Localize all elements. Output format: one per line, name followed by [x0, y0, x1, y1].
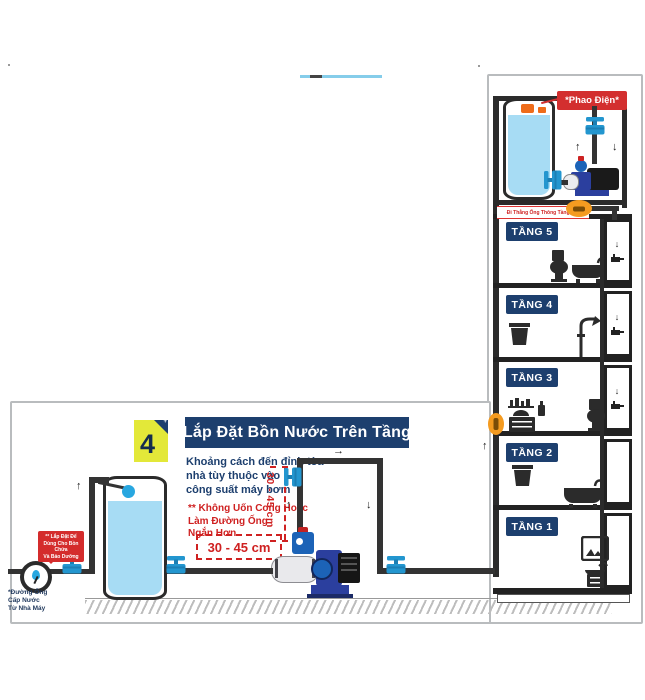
arrow-up-icon: ↑: [482, 441, 488, 452]
roof-suction-valve-icon: [544, 170, 562, 190]
shaft-valve-icon: ↓: [609, 313, 625, 340]
pump-motor: [338, 553, 360, 583]
pump-foot: [307, 594, 353, 598]
bathtub-icon: [563, 478, 603, 508]
arrow-up-icon: ↑: [286, 500, 292, 511]
tank-outlet-valve-icon: [166, 556, 186, 574]
supply-label-line: *Đường Ống: [8, 589, 47, 597]
vanity-shelf-icon: [506, 396, 540, 434]
loop-valve-icon: [284, 467, 302, 487]
arrow-down-icon: ↓: [609, 387, 625, 396]
step-badge: + 4: [134, 420, 168, 462]
pressure-controller: [292, 532, 314, 554]
shaft-valve-icon: ↓: [609, 240, 625, 267]
outlet-valve-icon: [386, 556, 406, 574]
roof-pump: [563, 160, 623, 200]
bubble-line: Dùng Cho Bồn Chứa: [38, 541, 84, 554]
floor-5-label: TẦNG 5: [506, 222, 558, 241]
floor-4-label: TẦNG 4: [506, 295, 558, 314]
laundry-basket-icon: [509, 320, 530, 346]
roof-outlet-pipe: [592, 106, 597, 164]
supply-label-line: Từ Nhà Máy: [8, 605, 47, 613]
floor-2-label: TẦNG 2: [506, 443, 558, 462]
shaft-floor2: [604, 439, 632, 505]
ground-tank-water: [108, 501, 162, 595]
float-switch-icon: [521, 104, 534, 113]
floor-1-label: TẦNG 1: [506, 517, 558, 536]
slab-4-3: [493, 357, 632, 362]
arrow-down-icon: ↓: [612, 142, 618, 153]
fill-pipe: [89, 477, 95, 574]
floor-3-label: TẦNG 3: [506, 368, 558, 387]
supply-label-line: Cấp Nước: [8, 597, 47, 605]
foundation: [497, 594, 630, 603]
pump-base: [575, 190, 609, 196]
pump-head: [311, 558, 333, 580]
step-number: 4: [140, 429, 155, 460]
arrow-right-icon: →: [333, 446, 344, 457]
pump-cap: [578, 156, 584, 161]
booster-pump: [271, 527, 361, 600]
faucet-valve-icon: [611, 326, 624, 335]
faucet-valve-icon: [611, 400, 624, 409]
artifact-blue-line: [300, 75, 382, 78]
speck-dot: [478, 65, 480, 67]
loop-top-pipe: [297, 458, 383, 464]
toilet-icon: [546, 250, 572, 283]
toilet-icon: [583, 399, 609, 432]
shaft-valve-icon: ↓: [609, 387, 625, 414]
bubble-line: Và Bảo Dưỡng: [38, 554, 84, 561]
arrow-up-icon: ↑: [76, 481, 82, 492]
sink-vanity-icon: [581, 560, 609, 588]
arrow-down-icon: ↓: [609, 313, 625, 322]
float-ball-icon: [122, 485, 135, 498]
mirror-icon: [581, 536, 609, 561]
plumbing-diagram: ↓ ↓ ↓ *Phao Điện* ↑ ↓ Đi Thẳng Ống Thông…: [0, 0, 645, 700]
sparkle-icon: +: [163, 419, 167, 425]
laundry-basket-icon: [512, 463, 533, 487]
roof-wall-bottom: [493, 200, 627, 205]
ground-tank: [103, 476, 167, 600]
shower-icon: [577, 314, 602, 358]
arrow-down-icon: ↓: [609, 240, 625, 249]
slab-5-4: [493, 283, 632, 288]
bathtub-icon: [571, 255, 605, 283]
faucet-valve-icon: [611, 253, 624, 262]
soap-bottle-icon: [537, 401, 547, 416]
pump-motor: [587, 168, 619, 190]
speck-dot: [8, 64, 10, 66]
roof-valve-icon: [585, 117, 605, 135]
orange-valve-icon: [566, 200, 592, 217]
pump-switch: [575, 160, 587, 172]
valve-note-bubble: ** Lắp Đặt Để Dùng Cho Bồn Chứa Và Bảo D…: [38, 531, 84, 562]
shaft-feed-pipe: [612, 206, 617, 220]
loop-right-pipe: [377, 458, 383, 574]
supply-label: *Đường Ống Cấp Nước Từ Nhà Máy: [8, 589, 47, 613]
float-switch-icon: [538, 107, 546, 113]
diagram-title: Lắp Đặt Bồn Nước Trên Tầng: [185, 417, 409, 448]
arrow-up-icon: ↑: [575, 142, 581, 153]
arrow-down-icon: ↓: [366, 500, 372, 511]
riser-orange-valve-icon: [488, 413, 504, 435]
artifact-dark-segment: [310, 75, 322, 78]
pump-base: [311, 585, 349, 594]
